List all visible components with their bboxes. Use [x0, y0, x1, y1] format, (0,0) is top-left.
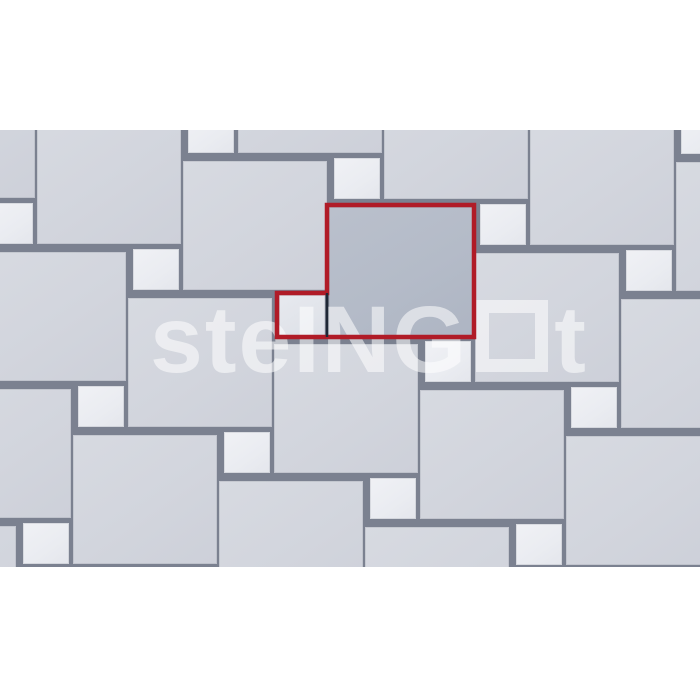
- paving-tile-small: [370, 478, 416, 519]
- paving-tile-large: [183, 161, 327, 290]
- paving-tile-large: [365, 527, 509, 568]
- paving-tile-large: [676, 162, 700, 291]
- paving-tile-small: [23, 523, 69, 564]
- paving-tile-small: [78, 386, 124, 427]
- paving-tile-small: [334, 158, 380, 199]
- paving-tile-small: [571, 387, 617, 428]
- paving-tile-large: [219, 481, 363, 568]
- paving-tile-small: [626, 250, 672, 291]
- paving-tile-large: [274, 344, 418, 473]
- paving-tile-small: [0, 203, 33, 244]
- paving-tile-large: [420, 390, 564, 519]
- paving-tile-small: [425, 341, 471, 382]
- highlighted-large-tile: [329, 207, 473, 336]
- product-image-canvas: steINGt: [0, 0, 700, 700]
- paving-tile-small: [188, 130, 234, 153]
- paving-pattern: steINGt: [0, 130, 700, 567]
- paving-tile-large: [0, 526, 16, 568]
- paving-tile-large: [238, 130, 382, 153]
- paving-tile-small: [480, 204, 526, 245]
- paving-tile-small: [681, 130, 700, 154]
- paving-tile-small: [133, 249, 179, 290]
- paving-tile-small: [516, 524, 562, 565]
- paving-tile-large: [530, 130, 674, 245]
- paving-tile-large: [621, 299, 700, 428]
- paving-tile-large: [0, 130, 35, 198]
- paving-tile-large: [128, 298, 272, 427]
- paving-tile-small: [224, 432, 270, 473]
- highlighted-small-tile: [279, 295, 325, 336]
- paving-tile-large: [384, 130, 528, 199]
- paving-tile-large: [0, 252, 126, 381]
- paving-tile-large: [566, 436, 700, 565]
- paving-tile-large: [37, 130, 181, 244]
- paving-tile-large: [0, 389, 71, 518]
- paving-tile-large: [73, 435, 217, 564]
- paving-tile-large: [475, 253, 619, 382]
